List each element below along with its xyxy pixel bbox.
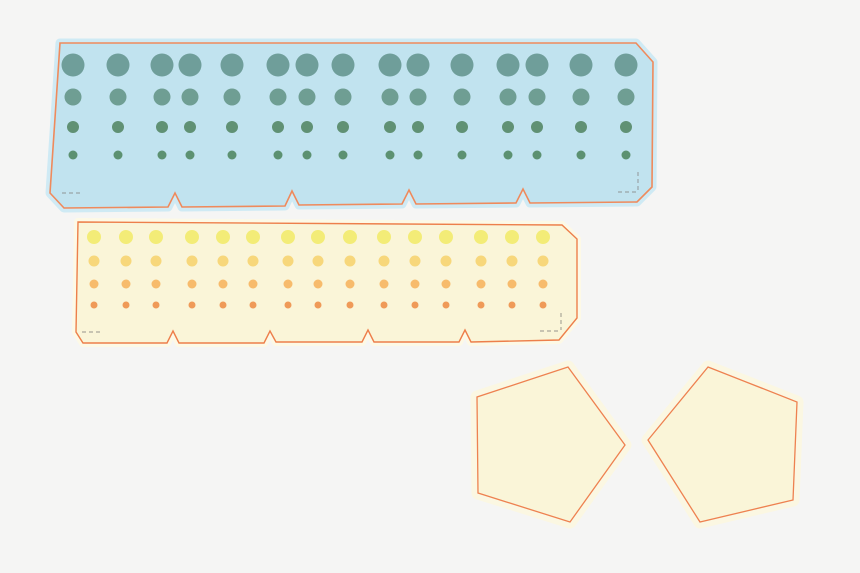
blue-strip-dot (335, 89, 352, 106)
blue-strip-dot (412, 121, 424, 133)
yellow-strip-dot (119, 230, 133, 244)
yellow-strip-dot (285, 302, 292, 309)
yellow-strip-dot (281, 230, 295, 244)
yellow-strip-dot (219, 280, 228, 289)
yellow-strip-dot (311, 230, 325, 244)
template-svg (0, 0, 860, 573)
blue-strip-dot (112, 121, 124, 133)
blue-strip-dot (379, 54, 402, 77)
blue-strip-dot (151, 54, 174, 77)
blue-strip-dot (107, 54, 130, 77)
yellow-strip-dot (443, 302, 450, 309)
yellow-strip-dot (346, 280, 355, 289)
yellow-strip-dot (216, 230, 230, 244)
yellow-strip-dot (246, 230, 260, 244)
blue-strip-dot (221, 54, 244, 77)
pentagon-right (648, 367, 797, 522)
blue-strip-dot (65, 89, 82, 106)
blue-strip-dot (618, 89, 635, 106)
blue-strip-dot (529, 89, 546, 106)
blue-strip-dot (270, 89, 287, 106)
yellow-strip-dot (408, 230, 422, 244)
yellow-strip-dot (377, 230, 391, 244)
yellow-strip-dot (187, 256, 198, 267)
blue-strip-dot (62, 54, 85, 77)
yellow-strip-dot (441, 256, 452, 267)
yellow-strip-dot (474, 230, 488, 244)
blue-strip-dot (451, 54, 474, 77)
yellow-strip-dot (283, 256, 294, 267)
yellow-strip-dot (284, 280, 293, 289)
blue-strip-dot (337, 121, 349, 133)
yellow-strip-dot (412, 302, 419, 309)
yellow-strip-dot (508, 280, 517, 289)
pentagon-left-cut-outline (477, 367, 625, 522)
blue-strip-dot (533, 151, 542, 160)
blue-strip-dot (384, 121, 396, 133)
yellow-strip-dot (410, 256, 421, 267)
yellow-strip-dot (381, 302, 388, 309)
blue-strip-dot (299, 89, 316, 106)
blue-strip (50, 43, 653, 208)
blue-strip-dot (622, 151, 631, 160)
blue-strip-dot (228, 151, 237, 160)
yellow-strip-dot (539, 280, 548, 289)
blue-strip-dot (69, 151, 78, 160)
yellow-strip-dot (121, 256, 132, 267)
blue-strip-dot (303, 151, 312, 160)
yellow-strip (76, 222, 577, 343)
yellow-strip-dot (345, 256, 356, 267)
yellow-strip-dot (220, 302, 227, 309)
papercraft-template-canvas (0, 0, 860, 573)
blue-strip-dot (575, 121, 587, 133)
yellow-strip-dot (90, 280, 99, 289)
blue-strip-dot (184, 121, 196, 133)
blue-strip-dot (226, 121, 238, 133)
blue-strip-dot (497, 54, 520, 77)
yellow-strip-dot (507, 256, 518, 267)
blue-strip-dot (272, 121, 284, 133)
blue-strip-dot (573, 89, 590, 106)
blue-strip-dot (410, 89, 427, 106)
blue-strip-dot (577, 151, 586, 160)
blue-strip-dot (182, 89, 199, 106)
yellow-strip-dot (123, 302, 130, 309)
blue-strip-dot (301, 121, 313, 133)
yellow-strip-dot (347, 302, 354, 309)
yellow-strip-dot (149, 230, 163, 244)
blue-strip-dot (414, 151, 423, 160)
yellow-strip-dot (439, 230, 453, 244)
yellow-strip-dot (380, 280, 389, 289)
blue-strip-dot (382, 89, 399, 106)
yellow-strip-dot (189, 302, 196, 309)
blue-strip-dot (386, 151, 395, 160)
yellow-strip-dot (249, 280, 258, 289)
blue-strip-dot (454, 89, 471, 106)
yellow-strip-dot (536, 230, 550, 244)
yellow-strip-dot (477, 280, 486, 289)
blue-strip-dot (110, 89, 127, 106)
yellow-strip-dot (122, 280, 131, 289)
pentagon-left (477, 367, 625, 522)
blue-strip-dot (267, 54, 290, 77)
yellow-strip-dot (540, 302, 547, 309)
yellow-strip-dot (315, 302, 322, 309)
yellow-strip-dot (442, 280, 451, 289)
yellow-strip-dot (313, 256, 324, 267)
blue-strip-dot (526, 54, 549, 77)
yellow-strip-dot (476, 256, 487, 267)
yellow-strip-dot (250, 302, 257, 309)
blue-strip-dot (407, 54, 430, 77)
blue-strip-dot (504, 151, 513, 160)
blue-strip-dot (500, 89, 517, 106)
blue-strip-dot (620, 121, 632, 133)
blue-strip-dot (158, 151, 167, 160)
blue-strip-dot (179, 54, 202, 77)
yellow-strip-dot (152, 280, 161, 289)
yellow-strip-dot (153, 302, 160, 309)
yellow-strip-dot (248, 256, 259, 267)
blue-strip-dot (332, 54, 355, 77)
blue-strip-dot (456, 121, 468, 133)
blue-strip-dot (224, 89, 241, 106)
blue-strip-dot (570, 54, 593, 77)
blue-strip-dot (154, 89, 171, 106)
yellow-strip-dot (478, 302, 485, 309)
blue-strip-dot (156, 121, 168, 133)
yellow-strip-dot (505, 230, 519, 244)
yellow-strip-dot (314, 280, 323, 289)
blue-strip-dot (67, 121, 79, 133)
blue-strip-dot (339, 151, 348, 160)
blue-strip-dot (296, 54, 319, 77)
blue-strip-dot (114, 151, 123, 160)
blue-strip-dot (274, 151, 283, 160)
blue-strip-dot (502, 121, 514, 133)
yellow-strip-dot (185, 230, 199, 244)
yellow-strip-dot (343, 230, 357, 244)
yellow-strip-dot (151, 256, 162, 267)
blue-strip-dot (531, 121, 543, 133)
yellow-strip-dot (188, 280, 197, 289)
yellow-strip-dot (218, 256, 229, 267)
yellow-strip-dot (87, 230, 101, 244)
blue-strip-dot (186, 151, 195, 160)
blue-strip-dot (458, 151, 467, 160)
blue-strip-dot (615, 54, 638, 77)
yellow-strip-dot (538, 256, 549, 267)
yellow-strip-dot (91, 302, 98, 309)
yellow-strip-dot (411, 280, 420, 289)
yellow-strip-dot (89, 256, 100, 267)
yellow-strip-dot (379, 256, 390, 267)
yellow-strip-dot (509, 302, 516, 309)
